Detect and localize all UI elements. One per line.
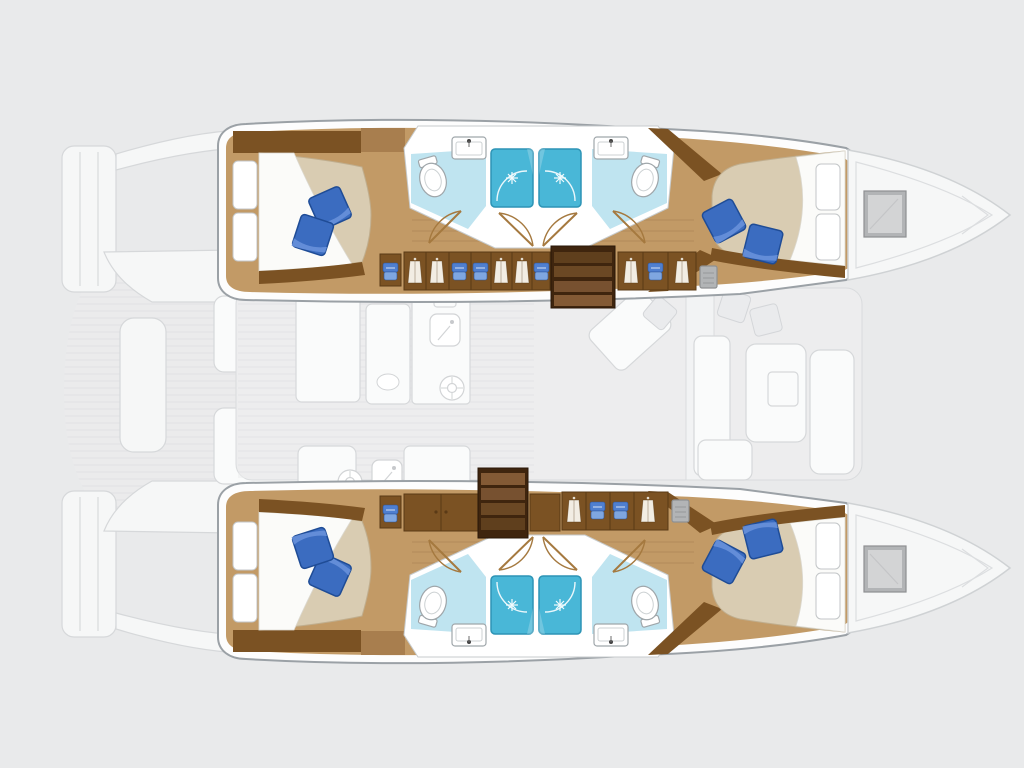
stair-tread	[554, 295, 612, 306]
galley-counter	[296, 290, 360, 402]
companionway-stairs	[478, 468, 528, 538]
aft-bench	[120, 318, 166, 452]
stair-tread	[481, 473, 525, 485]
stair-tread	[554, 266, 612, 277]
stair-tread	[481, 518, 525, 530]
galley	[296, 288, 470, 502]
stair-tread	[481, 488, 525, 500]
companionway-stairs	[551, 246, 615, 308]
scatter-cushion	[749, 303, 783, 337]
stair-tread	[481, 503, 525, 515]
floorplan-canvas	[0, 0, 1024, 768]
sofa	[698, 440, 752, 480]
stair-tread	[554, 281, 612, 292]
catamaran-floorplan	[0, 0, 1024, 768]
sofa	[810, 350, 854, 474]
stair-tread	[554, 252, 612, 263]
bottom-hull	[218, 468, 1010, 663]
top-hull	[218, 120, 1010, 308]
saloon-area	[236, 287, 862, 502]
